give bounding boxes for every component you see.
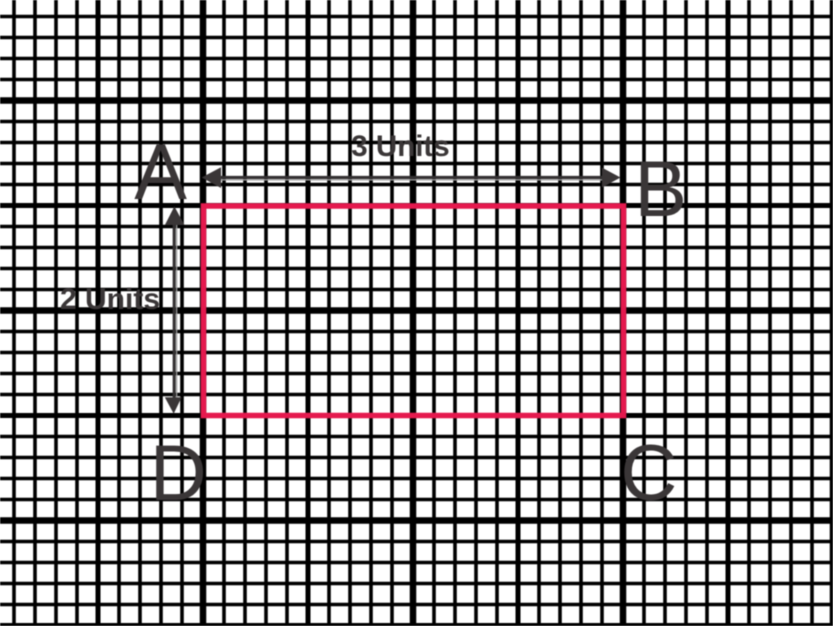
svg-text:A: A (134, 127, 187, 216)
svg-text:C: C (620, 427, 677, 516)
svg-text:2 Units: 2 Units (60, 283, 160, 316)
svg-text:3 Units: 3 Units (351, 130, 449, 163)
svg-text:B: B (634, 144, 687, 233)
svg-text:D: D (150, 428, 207, 517)
